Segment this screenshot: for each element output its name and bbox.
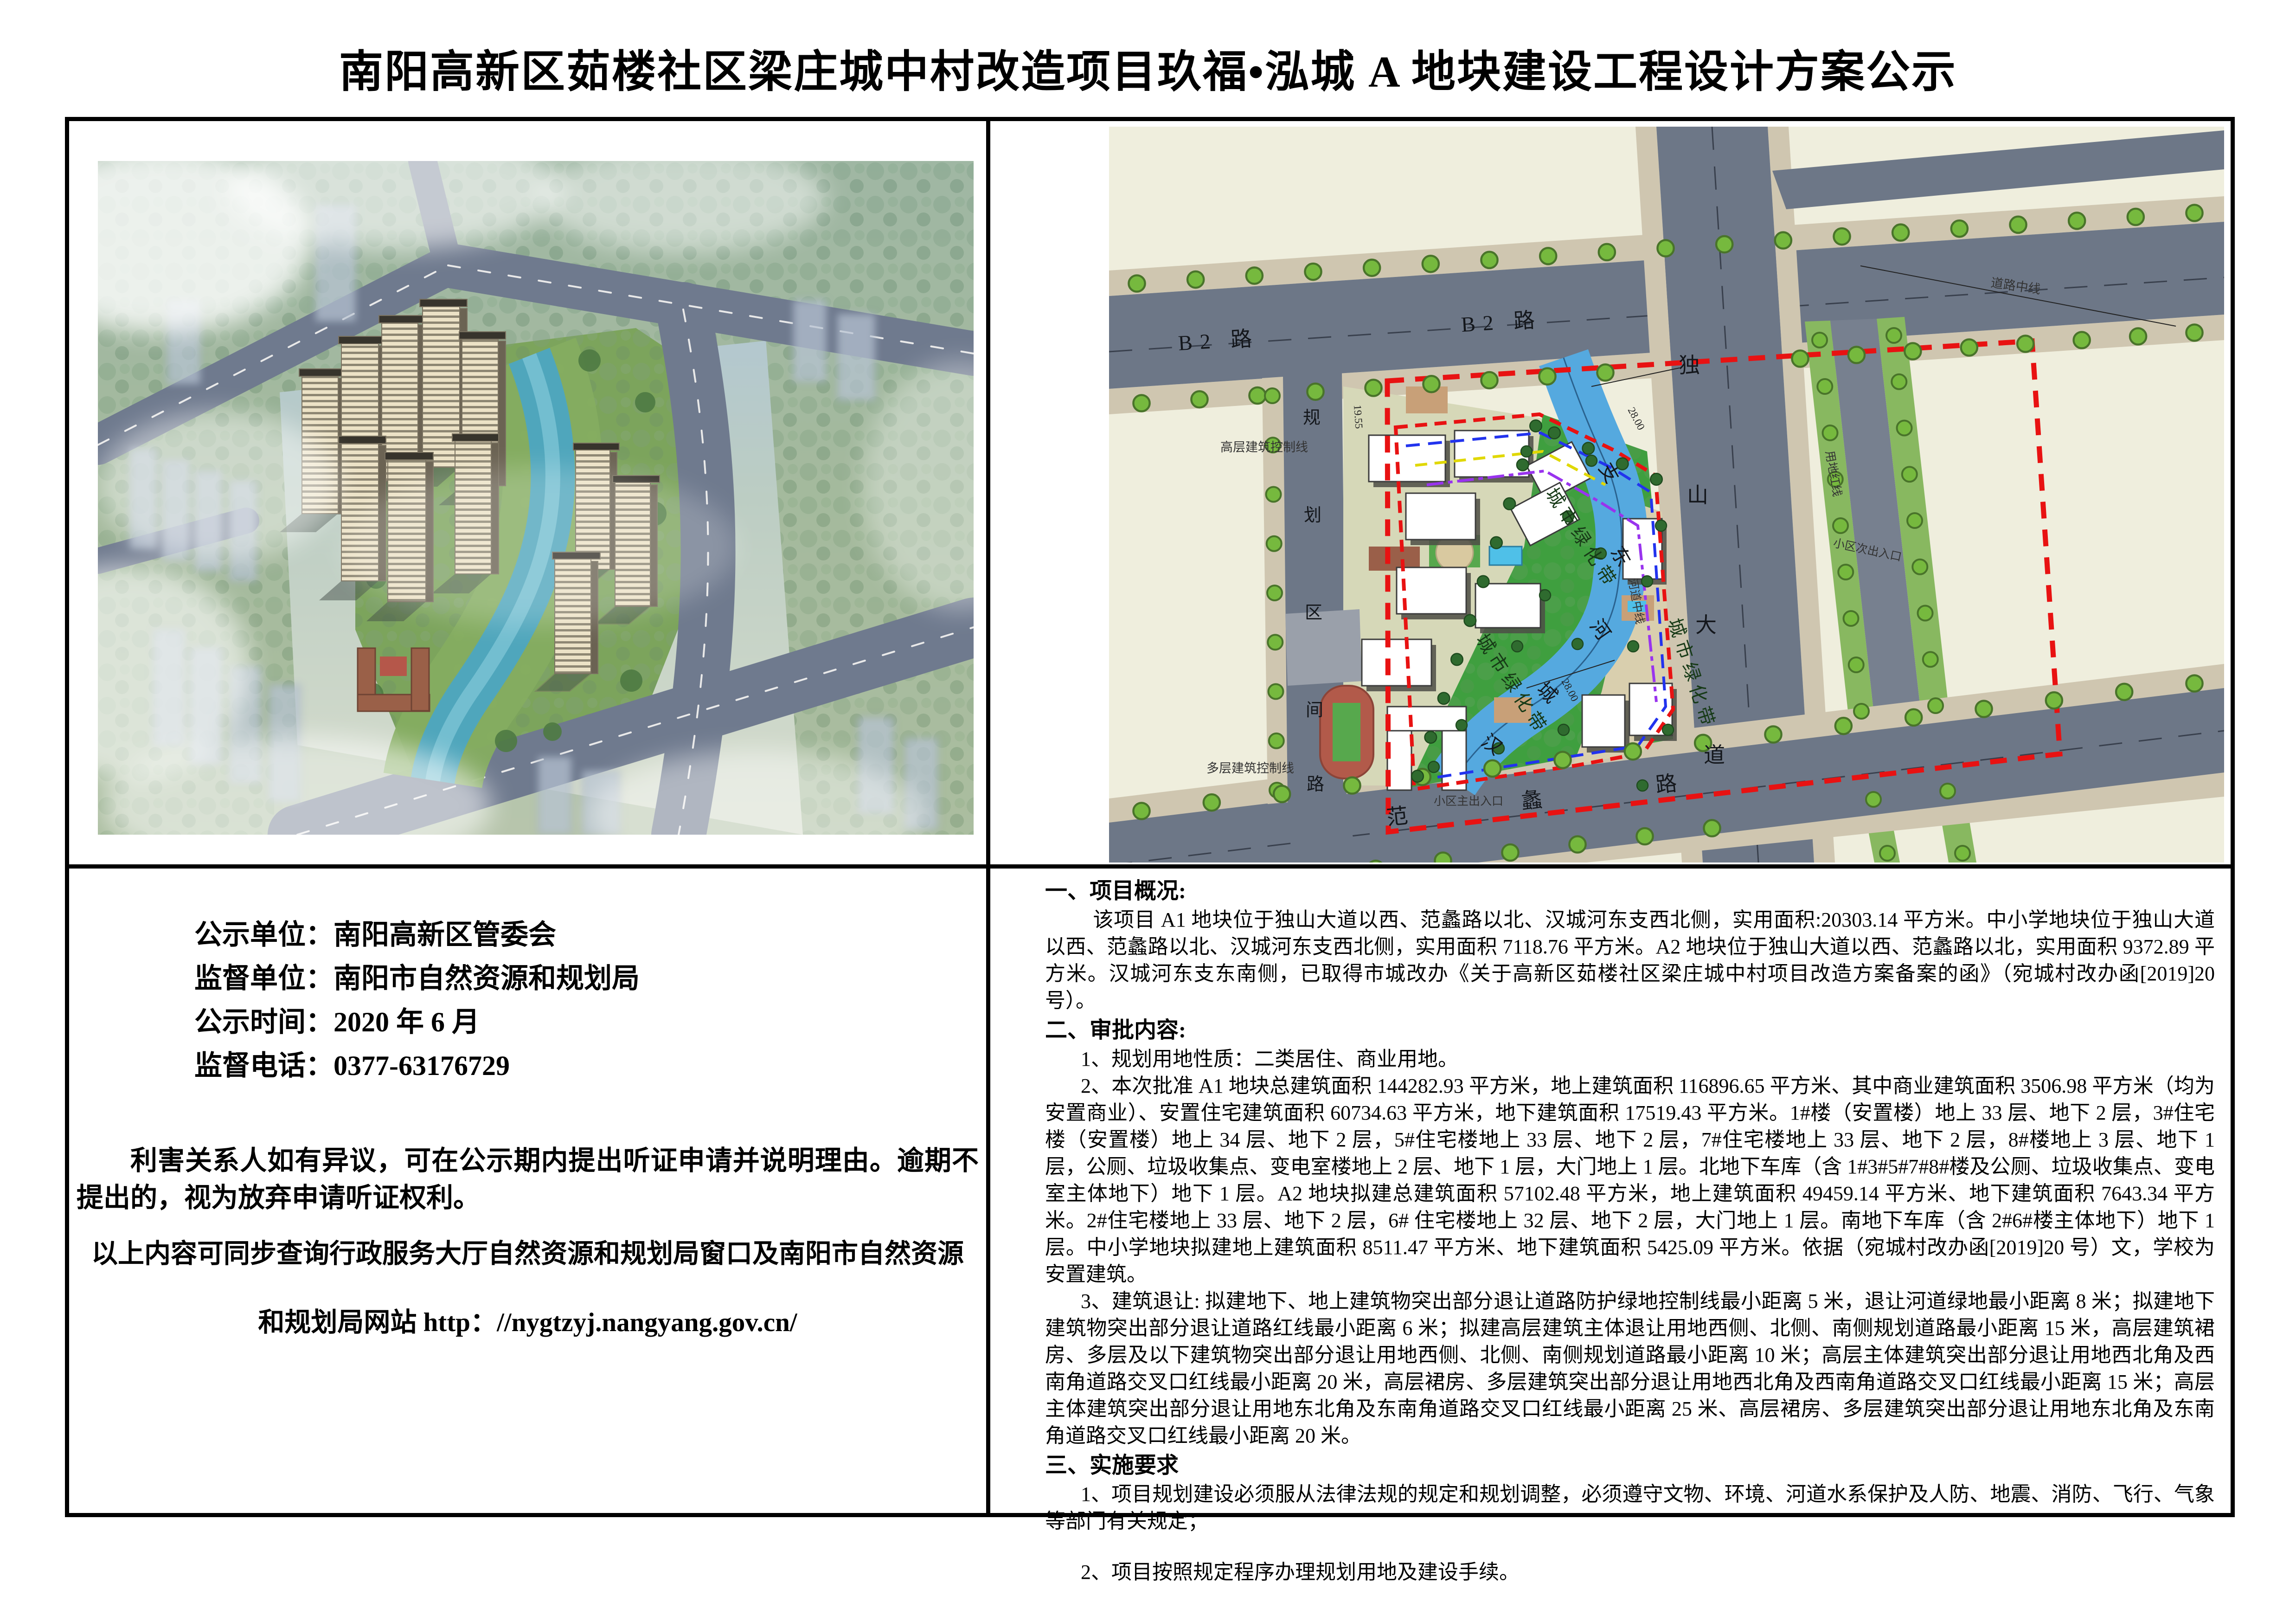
site-plan-cell: B2 路 B2 路 独 山 大 道 规 划 区 间 路 范 蠡 路 [990,121,2231,864]
field-supervisor-label: 监督单位： [194,963,333,994]
road-label-dushan-4: 道 [1704,743,1725,767]
info-cell: 公示单位：南阳高新区管委会 监督单位：南阳市自然资源和规划局 公示时间：2020… [69,869,986,1513]
field-publish-time-value: 2020 年 6 月 [333,1007,480,1037]
info-fields: 公示单位：南阳高新区管委会 监督单位：南阳市自然资源和规划局 公示时间：2020… [194,913,986,1088]
road-label-guihua-4: 间 [1306,701,1323,720]
field-publish-time-label: 公示时间： [194,1006,333,1037]
field-phone: 监督电话：0377-63176729 [194,1044,986,1088]
query-notice: 以上内容可同步查询行政服务大厅自然资源和规划局窗口及南阳市自然资源 [69,1232,986,1270]
road-label-guihua-5: 路 [1307,775,1324,794]
road-label-dushan-3: 大 [1695,613,1717,637]
road-label-b2-mid: B2 路 [1460,308,1543,336]
requirement-1: 1、项目规划建设必须服从法律法规的规定和规划调整，必须遵守文物、环境、河道水系保… [1045,1481,2215,1535]
section1-title: 一、项目概况: [1045,877,2215,906]
road-label-fanli-1: 范 [1385,804,1409,830]
aerial-rendering-image [98,161,974,835]
section3-title: 三、实施要求 [1045,1451,2215,1480]
row-divider [69,864,2231,869]
dim-19-55: 19.55 [1352,405,1365,429]
column-divider [986,121,990,1513]
field-publisher-label: 公示单位： [194,919,333,950]
section1-paragraph: 该项目 A1 地块位于独山大道以西、范蠡路以北、汉城河东支西北侧，实用面积:20… [1045,907,2215,1014]
label-main-entrance: 小区主出入口 [1434,795,1503,808]
field-phone-label: 监督电话： [194,1050,333,1081]
notice-page: 南阳高新区茹楼社区梁庄城中村改造项目玖福•泓城 A 地块建设工程设计方案公示 [0,0,2296,1622]
field-phone-value: 0377-63176729 [333,1050,510,1081]
page-title: 南阳高新区茹楼社区梁庄城中村改造项目玖福•泓城 A 地块建设工程设计方案公示 [0,36,2296,100]
road-label-dushan-1: 独 [1679,354,1700,377]
road-label-b2-left: B2 路 [1177,326,1260,355]
site-plan-image: B2 路 B2 路 独 山 大 道 规 划 区 间 路 范 蠡 路 [1109,127,2224,862]
approval-item-2: 2、本次批准 A1 地块总建筑面积 144282.93 平方米，地上建筑面积 1… [1045,1073,2215,1288]
approval-item-1: 1、规划用地性质：二类居住、商业用地。 [1045,1046,2215,1073]
notice-board: B2 路 B2 路 独 山 大 道 规 划 区 间 路 范 蠡 路 [65,117,2235,1517]
road-label-dushan-2: 山 [1687,483,1708,507]
requirement-2: 2、项目按照规定程序办理规划用地及建设手续。 [1045,1559,2215,1586]
details-cell: 一、项目概况: 该项目 A1 地块位于独山大道以西、范蠡路以北、汉城河东支西北侧… [990,869,2231,1513]
section2-title: 二、审批内容: [1045,1016,2215,1045]
label-multistorey-ctrl: 多层建筑控制线 [1206,761,1294,775]
field-publish-time: 公示时间：2020 年 6 月 [194,1000,986,1044]
road-label-fanli-3: 路 [1655,771,1678,797]
road-label-guihua-1: 规 [1303,408,1321,428]
field-publisher-value: 南阳高新区管委会 [333,920,556,950]
road-label-fanli-2: 蠡 [1520,787,1544,813]
label-highrise-ctrl: 高层建筑控制线 [1220,440,1308,454]
field-supervisor-value: 南阳市自然资源和规划局 [333,963,640,994]
website-notice: 和规划局网站 http：//nygtzyj.nangyang.gov.cn/ [69,1301,986,1339]
approval-item-3: 3、建筑退让: 拟建地下、地上建筑物突出部分退让道路防护绿地控制线最小距离 5 … [1045,1288,2215,1449]
objection-notice: 利害关系人如有异议，可在公示期内提出听证申请并说明理由。逾期不提出的，视为放弃申… [69,1142,986,1216]
field-publisher: 公示单位：南阳高新区管委会 [194,913,986,957]
field-supervisor: 监督单位：南阳市自然资源和规划局 [194,957,986,1000]
road-label-guihua-3: 区 [1305,603,1322,623]
rendering-cell [69,121,986,864]
road-label-guihua-2: 划 [1304,506,1321,525]
